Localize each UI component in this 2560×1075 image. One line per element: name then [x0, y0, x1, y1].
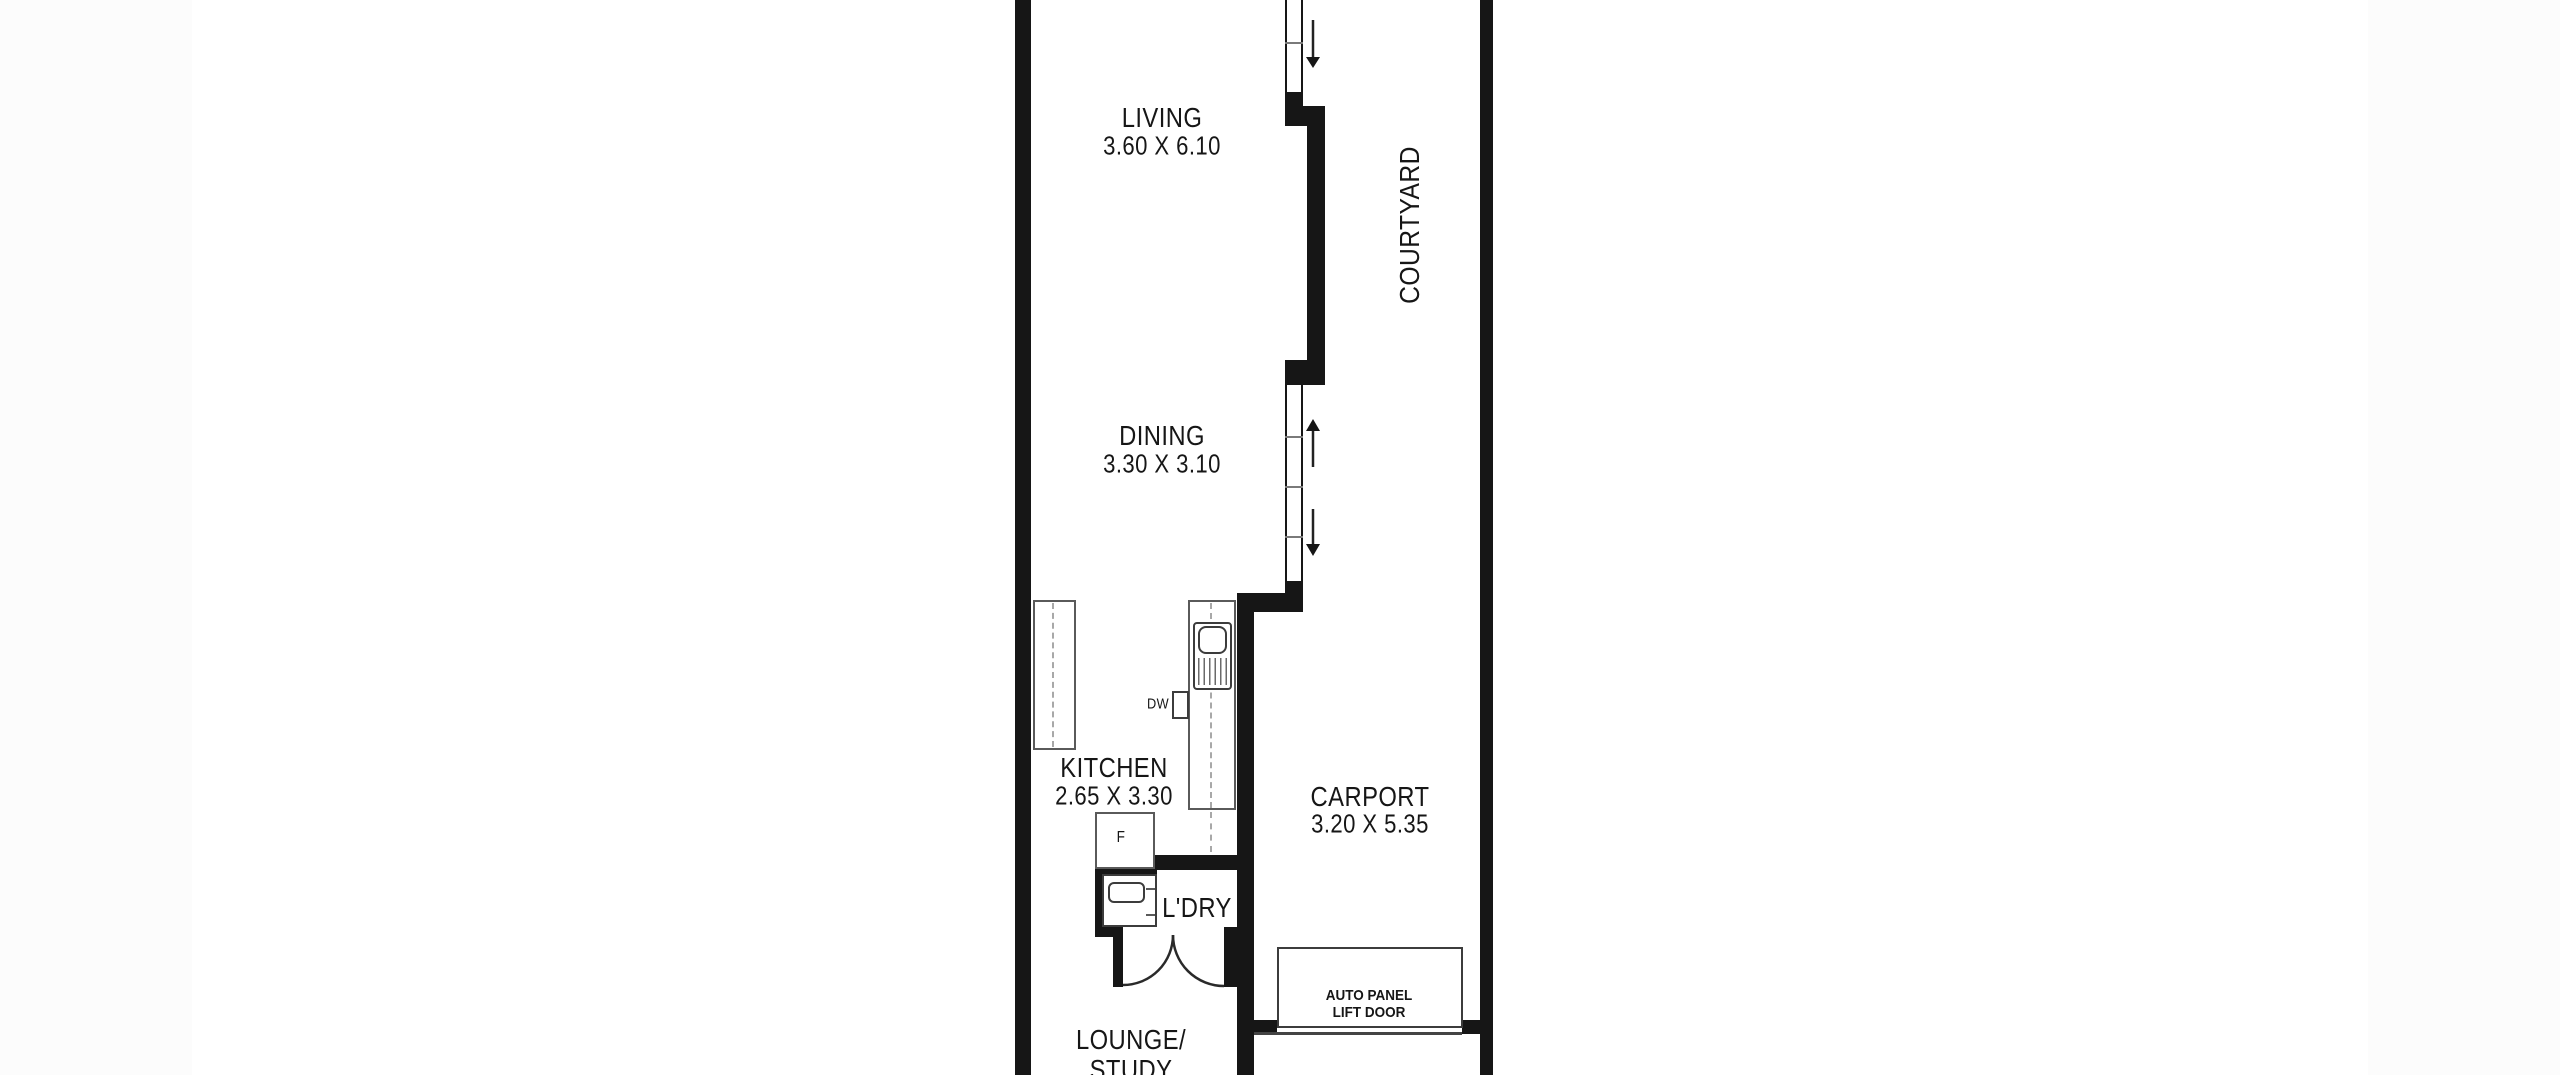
kitchen-dims: 2.65 X 3.30 [1055, 781, 1173, 812]
laundry-door-arc-right [1173, 935, 1224, 986]
living-room-dims: 3.60 X 6.10 [1103, 131, 1221, 162]
dining-arrow-up-head [1306, 419, 1320, 431]
laundry-label: L'DRY [1162, 892, 1232, 924]
kitchen-label: KITCHEN [1060, 752, 1167, 784]
courtyard-label: COURTYARD [1394, 146, 1426, 304]
laundry-door-arc-left [1123, 935, 1173, 985]
lounge-study-label-line1: LOUNGE/ [1076, 1024, 1186, 1056]
floor-plan: DW F AUTO PANEL LIFT DOOR LIVING 3.60 X … [0, 0, 2560, 1075]
dining-room-dims: 3.30 X 3.10 [1103, 449, 1221, 480]
dining-room-label: DINING [1119, 420, 1205, 452]
lounge-study-label-line2: STUDY [1090, 1054, 1173, 1075]
dining-arrow-down-head [1306, 544, 1320, 556]
living-room-label: LIVING [1122, 102, 1203, 134]
plan-symbols-overlay [0, 0, 2560, 1075]
living-window-arrow-head [1306, 57, 1320, 68]
carport-dims: 3.20 X 5.35 [1311, 809, 1429, 840]
